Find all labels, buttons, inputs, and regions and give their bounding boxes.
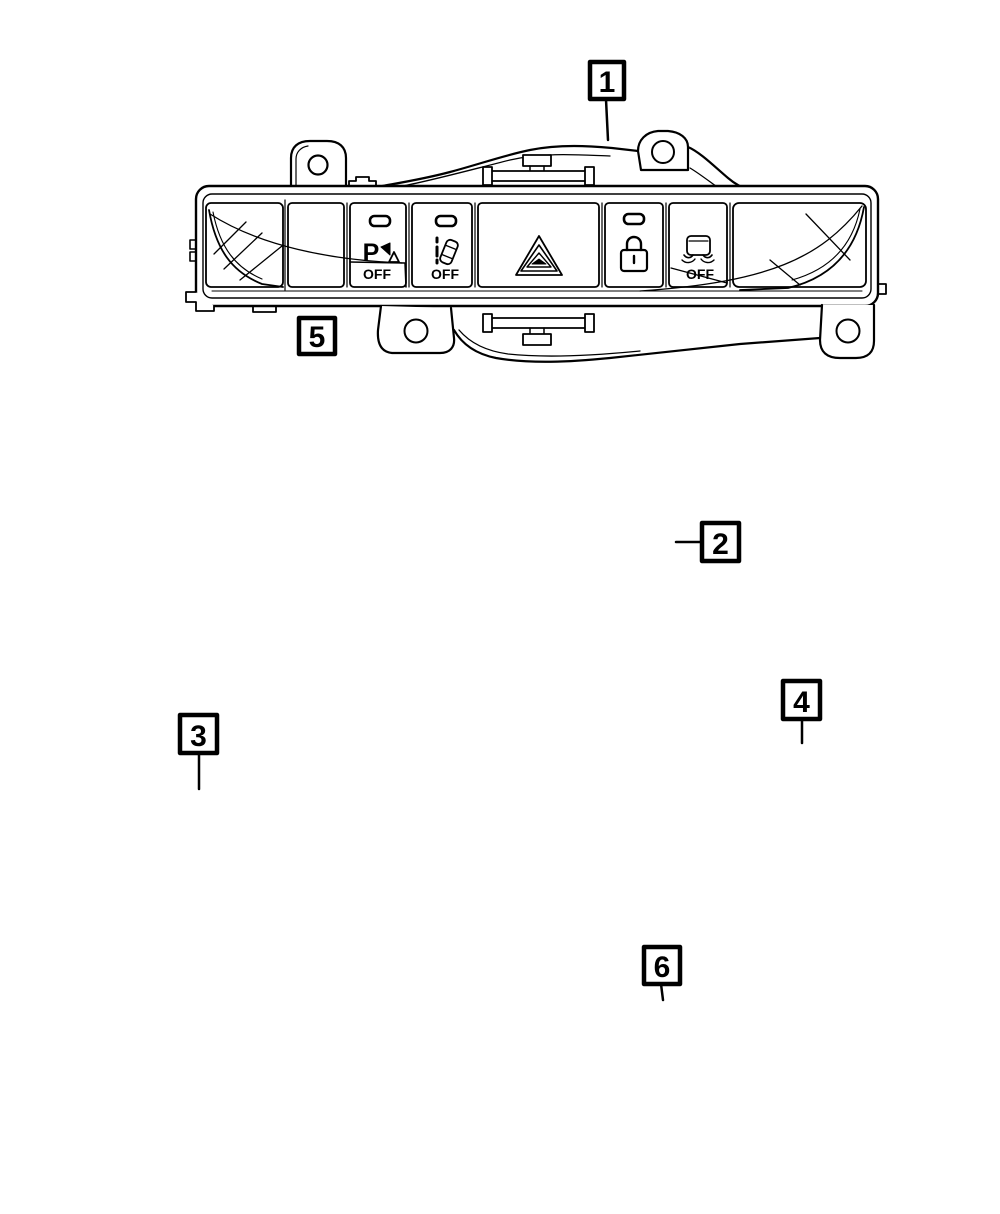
svg-text:6: 6 xyxy=(654,951,671,984)
svg-text:OFF: OFF xyxy=(686,266,714,282)
svg-text:3: 3 xyxy=(190,720,207,753)
svg-text:4: 4 xyxy=(793,686,810,719)
svg-text:OFF: OFF xyxy=(363,266,391,282)
svg-text:5: 5 xyxy=(309,321,326,354)
svg-text:1: 1 xyxy=(599,66,616,99)
svg-text:OFF: OFF xyxy=(431,266,459,282)
svg-text:2: 2 xyxy=(712,528,729,561)
